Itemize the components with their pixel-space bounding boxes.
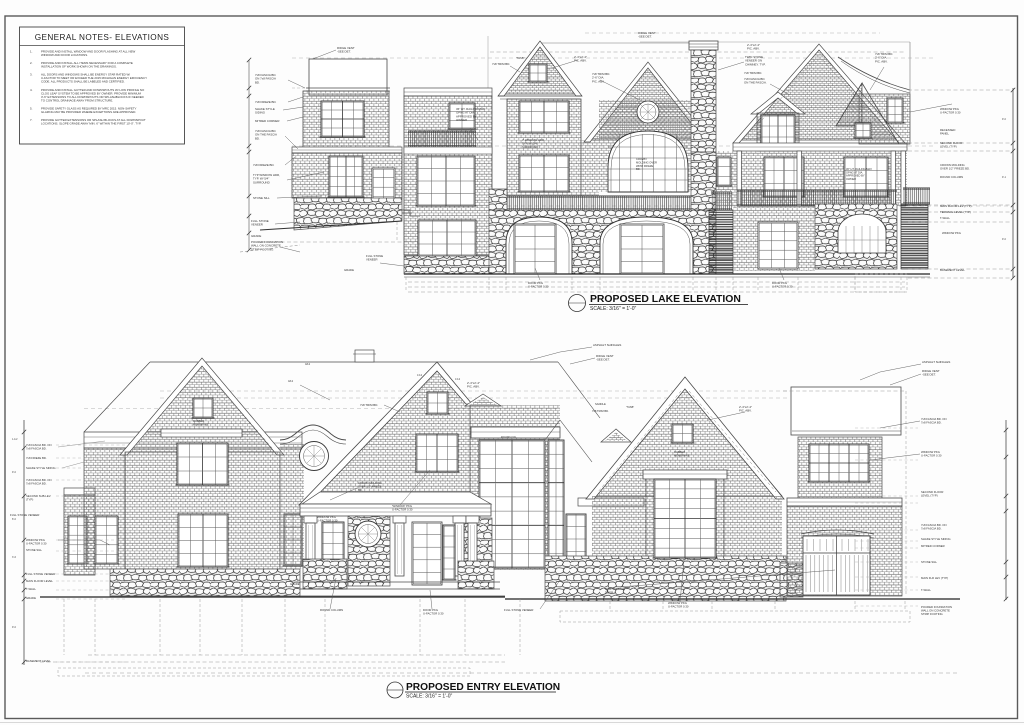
svg-text:'WINDOW' PKGU-FACTOR 0.30: 'WINDOW' PKGU-FACTOR 0.30	[392, 504, 413, 512]
svg-text:2.: 2.	[30, 61, 33, 65]
svg-text:BASEMENT LEVEL: BASEMENT LEVEL	[26, 659, 51, 663]
svg-text:ROUND COLUMN: ROUND COLUMN	[940, 175, 963, 179]
svg-text:7.: 7.	[30, 118, 33, 122]
svg-text:3.: 3.	[30, 73, 33, 77]
svg-text:MAIN FLR LEV (TYP): MAIN FLR LEV (TYP)	[921, 576, 948, 580]
svg-text:4.: 4.	[30, 88, 33, 92]
svg-text:T-WALL: T-WALL	[921, 588, 931, 592]
svg-text:7x8 TRIM BD.: 7x8 TRIM BD.	[492, 62, 510, 66]
svg-text:FULL STONE VENEER: FULL STONE VENEER	[504, 608, 533, 612]
svg-text:7x8 TRIM BD.: 7x8 TRIM BD.	[744, 71, 762, 75]
svg-text:MITRED CORNER: MITRED CORNER	[255, 119, 279, 123]
svg-text:1-1/2: 1-1/2	[12, 438, 18, 441]
svg-text:4 12: 4 12	[455, 377, 461, 381]
svg-text:7x8 TRIM BD.: 7x8 TRIM BD.	[360, 403, 378, 407]
svg-text:PROPOSED LAKE ELEVATION: PROPOSED LAKE ELEVATION	[590, 294, 741, 305]
svg-text:GRADE: GRADE	[26, 596, 36, 600]
svg-text:9'-0: 9'-0	[12, 626, 17, 629]
svg-text:4/12: 4/12	[288, 379, 294, 383]
svg-text:WINDOW PKGU-FACTOR 0.30: WINDOW PKGU-FACTOR 0.30	[921, 450, 942, 458]
svg-text:T-WALL: T-WALL	[940, 216, 950, 220]
svg-text:SCALE: 3/16" = 1'-0": SCALE: 3/16" = 1'-0"	[406, 694, 453, 700]
svg-text:ASPHALT SHINGLES: ASPHALT SHINGLES	[593, 343, 621, 347]
svg-text:"TASB": "TASB"	[516, 56, 525, 60]
svg-text:7x8 FRIEZE BD.: 7x8 FRIEZE BD.	[255, 100, 277, 104]
svg-text:STONE SILL: STONE SILL	[253, 196, 270, 200]
svg-text:GRADE: GRADE	[290, 582, 300, 586]
svg-text:MAIN FLOOR LEVEL: MAIN FLOOR LEVEL	[26, 579, 53, 583]
svg-text:7x8 TRIM BD.: 7x8 TRIM BD.	[592, 409, 609, 413]
svg-text:GRADE: GRADE	[251, 234, 261, 238]
svg-text:4 12: 4 12	[417, 373, 423, 377]
svg-text:GENERAL NOTES- ELEVATIONS: GENERAL NOTES- ELEVATIONS	[35, 33, 170, 42]
svg-text:FULL STONE VENEER: FULL STONE VENEER	[26, 572, 55, 576]
svg-text:SHAKE STYLE SIDING: SHAKE STYLE SIDING	[921, 537, 951, 541]
svg-text:2'-4"x2'-4"PIC. ABV.: 2'-4"x2'-4"PIC. ABV.	[574, 55, 587, 63]
svg-text:PROVIDE GUTTER EXTENSIONS OR S: PROVIDE GUTTER EXTENSIONS OR SPLASH BLOC…	[41, 118, 146, 126]
svg-text:"TASB": "TASB"	[626, 406, 634, 409]
svg-text:2'-4"x2'-4"PIC. ABV.: 2'-4"x2'-4"PIC. ABV.	[467, 381, 480, 389]
svg-text:PROPOSED ENTRY ELEVATION: PROPOSED ENTRY ELEVATION	[406, 682, 560, 693]
svg-text:2'-4"x2'-4"PIC. ABV.: 2'-4"x2'-4"PIC. ABV.	[739, 405, 752, 413]
svg-text:SADDLE: SADDLE	[595, 402, 606, 406]
svg-text:8'-0: 8'-0	[12, 518, 17, 521]
svg-text:3'-6: 3'-6	[12, 556, 17, 559]
svg-text:PROVIDE SAFETY GLASS AS REQUIR: PROVIDE SAFETY GLASS AS REQUIRED BY MRC …	[41, 106, 137, 114]
svg-text:ROUND COLUMN: ROUND COLUMN	[320, 608, 343, 612]
svg-text:9'-0: 9'-0	[12, 471, 17, 474]
svg-text:7x8 FRIEZE BD.: 7x8 FRIEZE BD.	[253, 163, 275, 167]
svg-text:WINDOW PKGU-FACTOR 0.30: WINDOW PKGU-FACTOR 0.30	[317, 515, 338, 523]
svg-text:2'-4"x2'-4"PIC. ABV.: 2'-4"x2'-4"PIC. ABV.	[747, 43, 760, 51]
svg-text:WINDOW PKGU-FACTOR 0.30: WINDOW PKGU-FACTOR 0.30	[26, 538, 47, 546]
svg-text:7x8 FRIEZE BD.: 7x8 FRIEZE BD.	[26, 456, 47, 460]
svg-text:ROUND COL.: ROUND COL.	[501, 435, 518, 439]
svg-text:SCALE: 3/16" = 1'-0": SCALE: 3/16" = 1'-0"	[590, 306, 637, 312]
svg-text:T-WALL: T-WALL	[26, 587, 36, 591]
svg-text:STONE SILL: STONE SILL	[26, 548, 43, 552]
svg-text:1.: 1.	[30, 50, 33, 54]
svg-text:ASPHALT SHINGLES: ASPHALT SHINGLES	[922, 360, 950, 364]
svg-text:9'-1: 9'-1	[1002, 176, 1007, 179]
svg-text:9'-0: 9'-0	[1002, 238, 1007, 241]
svg-text:5.: 5.	[30, 106, 33, 110]
svg-text:4/12: 4/12	[305, 362, 311, 366]
svg-text:WINDOW PKGU-FACTOR 0.30: WINDOW PKGU-FACTOR 0.30	[668, 601, 689, 609]
svg-text:TERRACE LEVEL (TYP): TERRACE LEVEL (TYP)	[940, 210, 971, 214]
svg-text:WINDOW PKGU-FACTOR 0.30: WINDOW PKGU-FACTOR 0.30	[940, 107, 961, 115]
svg-text:FULL STONE VENEER: FULL STONE VENEER	[10, 513, 39, 517]
svg-text:MAIN FLOOR LEV (TYP): MAIN FLOOR LEV (TYP)	[940, 204, 972, 208]
svg-text:STONE SILL: STONE SILL	[921, 560, 938, 564]
svg-text:9'-0: 9'-0	[1002, 118, 1007, 121]
svg-text:WINDOW PKG: WINDOW PKG	[942, 231, 961, 235]
svg-text:SHAKE STYLE SIDING: SHAKE STYLE SIDING	[26, 466, 56, 470]
svg-text:GRADE: GRADE	[344, 268, 354, 272]
svg-text:MITRED CORNER: MITRED CORNER	[921, 544, 945, 548]
svg-text:BASEMENT LEVEL: BASEMENT LEVEL	[940, 268, 965, 272]
svg-text:7x8 FASCIA BD.ON THE FASCIA.: 7x8 FASCIA BD.ON THE FASCIA.	[744, 77, 767, 85]
